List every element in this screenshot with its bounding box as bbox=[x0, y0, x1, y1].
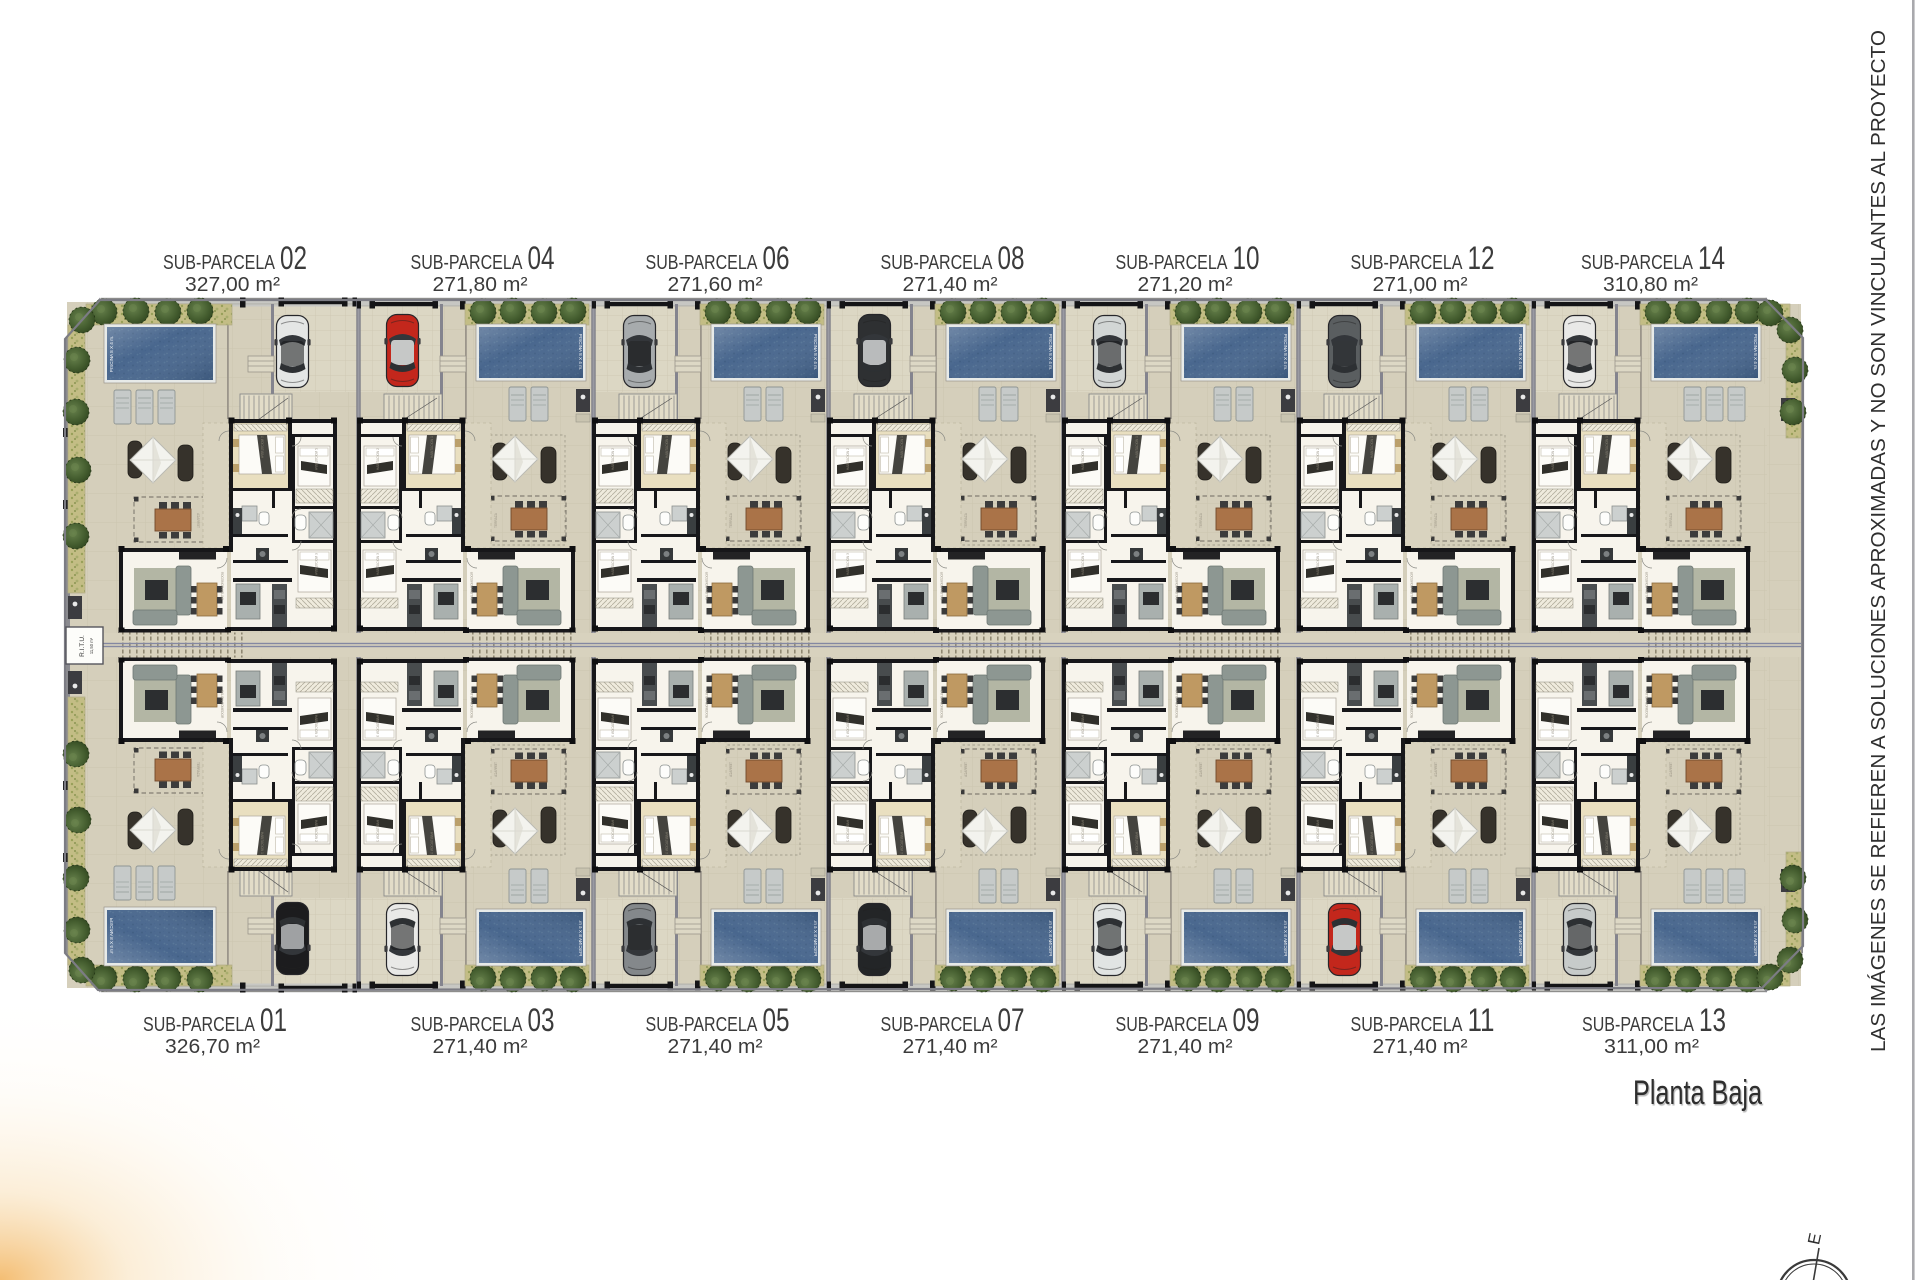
svg-text:SUB-PARCELA: SUB-PARCELA bbox=[881, 252, 994, 274]
svg-text:01: 01 bbox=[260, 1002, 287, 1038]
svg-text:R.I.T.U.: R.I.T.U. bbox=[79, 635, 86, 657]
svg-text:14: 14 bbox=[1698, 240, 1725, 276]
svg-text:271,00 m²: 271,00 m² bbox=[1373, 274, 1468, 296]
svg-text:07: 07 bbox=[998, 1002, 1025, 1038]
svg-text:05: 05 bbox=[763, 1002, 790, 1038]
svg-text:SUB-PARCELA: SUB-PARCELA bbox=[1582, 1014, 1695, 1036]
svg-text:SUB-PARCELA: SUB-PARCELA bbox=[1351, 1014, 1464, 1036]
svg-text:04: 04 bbox=[528, 240, 555, 276]
svg-text:12: 12 bbox=[1468, 240, 1495, 276]
svg-text:271,80 m²: 271,80 m² bbox=[433, 274, 528, 296]
svg-text:Planta Baja: Planta Baja bbox=[1633, 1074, 1762, 1112]
svg-text:326,70 m²: 326,70 m² bbox=[165, 1036, 260, 1058]
svg-text:SUB-PARCELA: SUB-PARCELA bbox=[1116, 252, 1229, 274]
svg-text:SUB-PARCELA: SUB-PARCELA bbox=[646, 252, 759, 274]
svg-text:271,40 m²: 271,40 m² bbox=[1373, 1036, 1468, 1058]
svg-text:271,40 m²: 271,40 m² bbox=[668, 1036, 763, 1058]
svg-text:11: 11 bbox=[1468, 1002, 1495, 1038]
svg-text:SUB-PARCELA: SUB-PARCELA bbox=[1116, 1014, 1229, 1036]
svg-text:02: 02 bbox=[280, 240, 307, 276]
svg-text:13: 13 bbox=[1699, 1002, 1726, 1038]
svg-text:PISCINA 8 X 4 m.: PISCINA 8 X 4 m. bbox=[109, 336, 114, 373]
svg-text:03: 03 bbox=[528, 1002, 555, 1038]
svg-text:SUB-PARCELA: SUB-PARCELA bbox=[143, 1014, 256, 1036]
svg-text:SUB-PARCELA: SUB-PARCELA bbox=[411, 1014, 524, 1036]
svg-text:SUB-PARCELA: SUB-PARCELA bbox=[1351, 252, 1464, 274]
svg-text:271,40 m²: 271,40 m² bbox=[433, 1036, 528, 1058]
svg-text:06: 06 bbox=[763, 240, 790, 276]
svg-text:310,80 m²: 310,80 m² bbox=[1603, 274, 1698, 296]
svg-text:271,40 m²: 271,40 m² bbox=[1138, 1036, 1233, 1058]
svg-text:11,50 m²: 11,50 m² bbox=[89, 637, 94, 654]
svg-text:271,60 m²: 271,60 m² bbox=[668, 274, 763, 296]
svg-text:311,00 m²: 311,00 m² bbox=[1604, 1036, 1699, 1058]
svg-text:LAS IMÁGENES SE REFIEREN A SOL: LAS IMÁGENES SE REFIEREN A SOLUCIONES AP… bbox=[1867, 30, 1890, 1052]
svg-text:SUB-PARCELA: SUB-PARCELA bbox=[163, 252, 276, 274]
svg-text:08: 08 bbox=[998, 240, 1025, 276]
svg-text:SUB-PARCELA: SUB-PARCELA bbox=[881, 1014, 994, 1036]
svg-text:271,20 m²: 271,20 m² bbox=[1138, 274, 1233, 296]
svg-text:271,40 m²: 271,40 m² bbox=[903, 274, 998, 296]
svg-text:327,00 m²: 327,00 m² bbox=[185, 274, 280, 296]
svg-text:10: 10 bbox=[1233, 240, 1260, 276]
svg-text:SUB-PARCELA: SUB-PARCELA bbox=[411, 252, 524, 274]
svg-text:SUB-PARCELA: SUB-PARCELA bbox=[646, 1014, 759, 1036]
svg-text:09: 09 bbox=[1233, 1002, 1260, 1038]
svg-text:271,40 m²: 271,40 m² bbox=[903, 1036, 998, 1058]
svg-text:SUB-PARCELA: SUB-PARCELA bbox=[1581, 252, 1694, 274]
